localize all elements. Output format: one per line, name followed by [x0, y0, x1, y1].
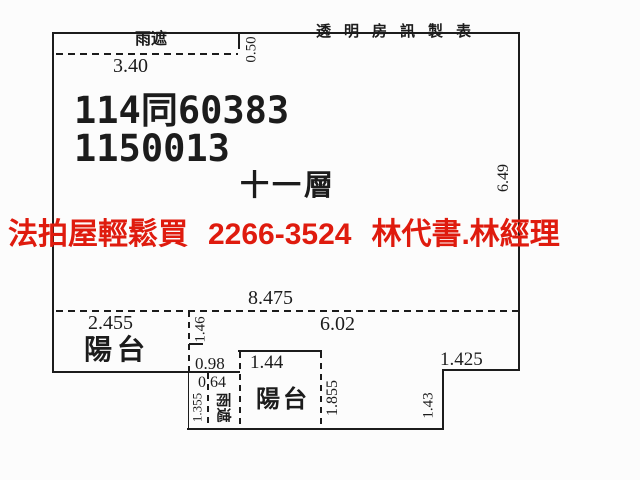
wall-left-line: [52, 32, 54, 373]
floor-label: 十一層: [240, 172, 336, 201]
interior-width-inner-dim: 6.02: [320, 314, 355, 334]
wall-bottom-line: [187, 428, 444, 430]
left-balcony-label: 陽台: [84, 336, 150, 364]
ad-overlay: 法拍屋輕鬆買 2266-3524 林代書.林經理: [8, 220, 560, 250]
bottom-canopy-label: 雨遮: [216, 388, 231, 428]
right-height-dim: 6.49: [496, 148, 512, 208]
left-balcony-depth-dim: 1.46: [194, 301, 209, 359]
wall-right-line: [518, 32, 520, 371]
floorplan-page: 透明房訊製表 雨遮 3.40 0.50 114同60383 1150013 十一…: [0, 0, 640, 480]
ad-contacts-text: 林代書.林經理: [371, 220, 559, 250]
ad-agency-text: 法拍屋輕鬆買: [8, 220, 188, 250]
top-canopy-label: 雨遮: [135, 32, 167, 48]
bottom-wall-segment-dim: 0.98: [195, 355, 225, 372]
bottom-balcony-label: 陽台: [256, 388, 310, 412]
interior-width-total-dim: 8.475: [248, 288, 293, 308]
top-canopy-depth-dim: 0.50: [245, 28, 260, 72]
bottom-balcony-left-dashed-line: [239, 352, 241, 429]
case-number-line1: 114同60383: [74, 92, 289, 129]
bottom-balcony-width-dim: 1.44: [250, 353, 283, 372]
left-balcony-right-dashed-line: [188, 311, 190, 373]
bottom-balcony-depth-dim: 1.855: [325, 369, 341, 427]
top-canopy-length-dim: 3.40: [113, 56, 148, 76]
notch-width-dim: 1.425: [440, 350, 483, 369]
publisher-label: 透明房訊製表: [316, 24, 484, 39]
left-balcony-width-dim: 2.455: [88, 313, 133, 333]
top-canopy-step-line: [238, 32, 240, 49]
notch-height-dim: 1.43: [422, 381, 437, 431]
bottom-balcony-right-dashed-line: [320, 352, 322, 429]
case-number-line2: 1150013: [74, 130, 230, 167]
ad-phone-text: 2266-3524: [208, 220, 351, 250]
bottom-canopy-height-dim: 1.355: [191, 383, 204, 433]
notch-vertical-wall-line: [442, 369, 444, 430]
